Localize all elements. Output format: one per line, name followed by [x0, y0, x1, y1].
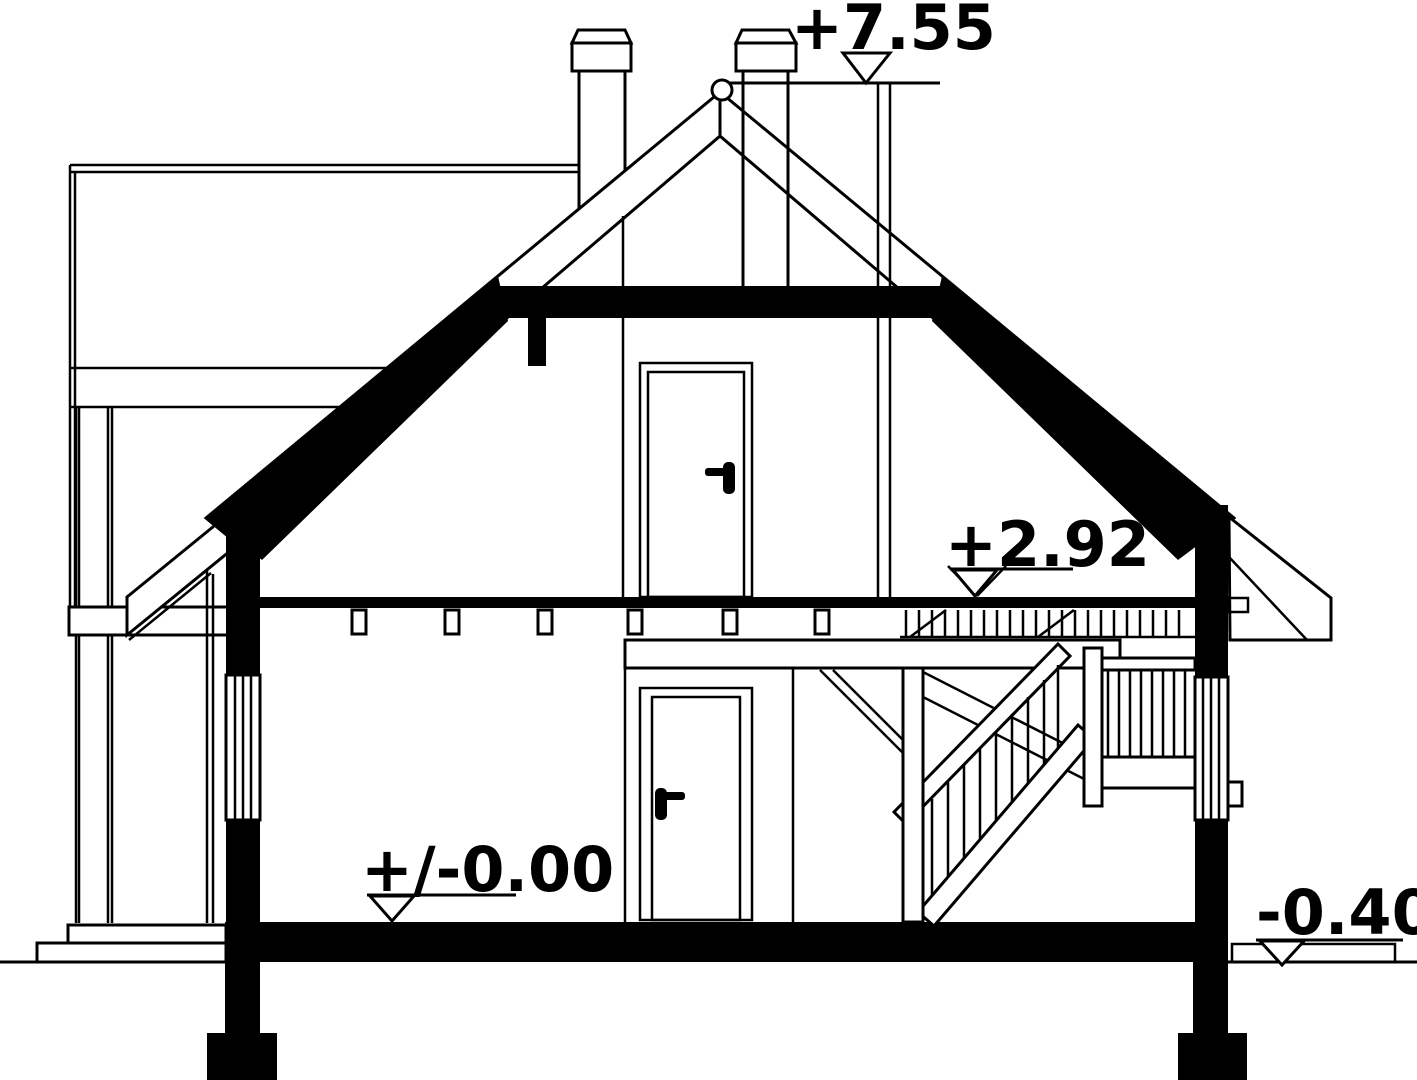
left-window: [226, 675, 260, 820]
vent-duct: [878, 83, 890, 597]
stair-stringer: [918, 725, 1094, 926]
ground-floor-level-label: +/-0.00: [361, 833, 614, 906]
right-footing: [1178, 1033, 1247, 1080]
elevation-marker-grade: -0.40: [1256, 876, 1417, 965]
ridge-circle: [712, 80, 732, 100]
left-footing: [207, 1033, 277, 1080]
staircase: [820, 566, 1195, 926]
attic-door: [640, 363, 752, 597]
right-window: [1195, 677, 1242, 820]
ground-floor-slab: [225, 922, 1228, 962]
elevation-marker-attic: +2.92: [945, 508, 1150, 596]
grade-level-label: -0.40: [1256, 876, 1417, 949]
roof-rafters: [206, 92, 1234, 546]
stair-landing: [1090, 757, 1195, 788]
window-sill: [1228, 782, 1242, 806]
house-section-svg: +7.55 +2.92 +/-0.00 -0.40: [0, 0, 1417, 1080]
ground-floor-door: [640, 688, 752, 920]
attic-door-handle-icon: [723, 462, 735, 494]
ceiling-joists: [352, 610, 829, 634]
ridge-level-label: +7.55: [791, 0, 996, 64]
landing-balusters: [1108, 670, 1185, 757]
collar-beam: [486, 286, 948, 318]
attic-level-label: +2.92: [945, 508, 1150, 581]
elevation-marker-ridge: +7.55: [791, 0, 996, 83]
attic-railing-balusters: [906, 610, 1179, 637]
elevation-marker-ground-floor: +/-0.00: [361, 833, 614, 921]
architectural-section-drawing: +7.55 +2.92 +/-0.00 -0.40: [0, 0, 1417, 1080]
newel-post: [903, 668, 923, 922]
attic-floor-slab: [260, 597, 1195, 608]
ridge-detail: [712, 80, 940, 100]
landing-rail: [1102, 658, 1195, 670]
landing-newel-post: [1084, 648, 1102, 806]
right-eave: [1228, 517, 1331, 640]
